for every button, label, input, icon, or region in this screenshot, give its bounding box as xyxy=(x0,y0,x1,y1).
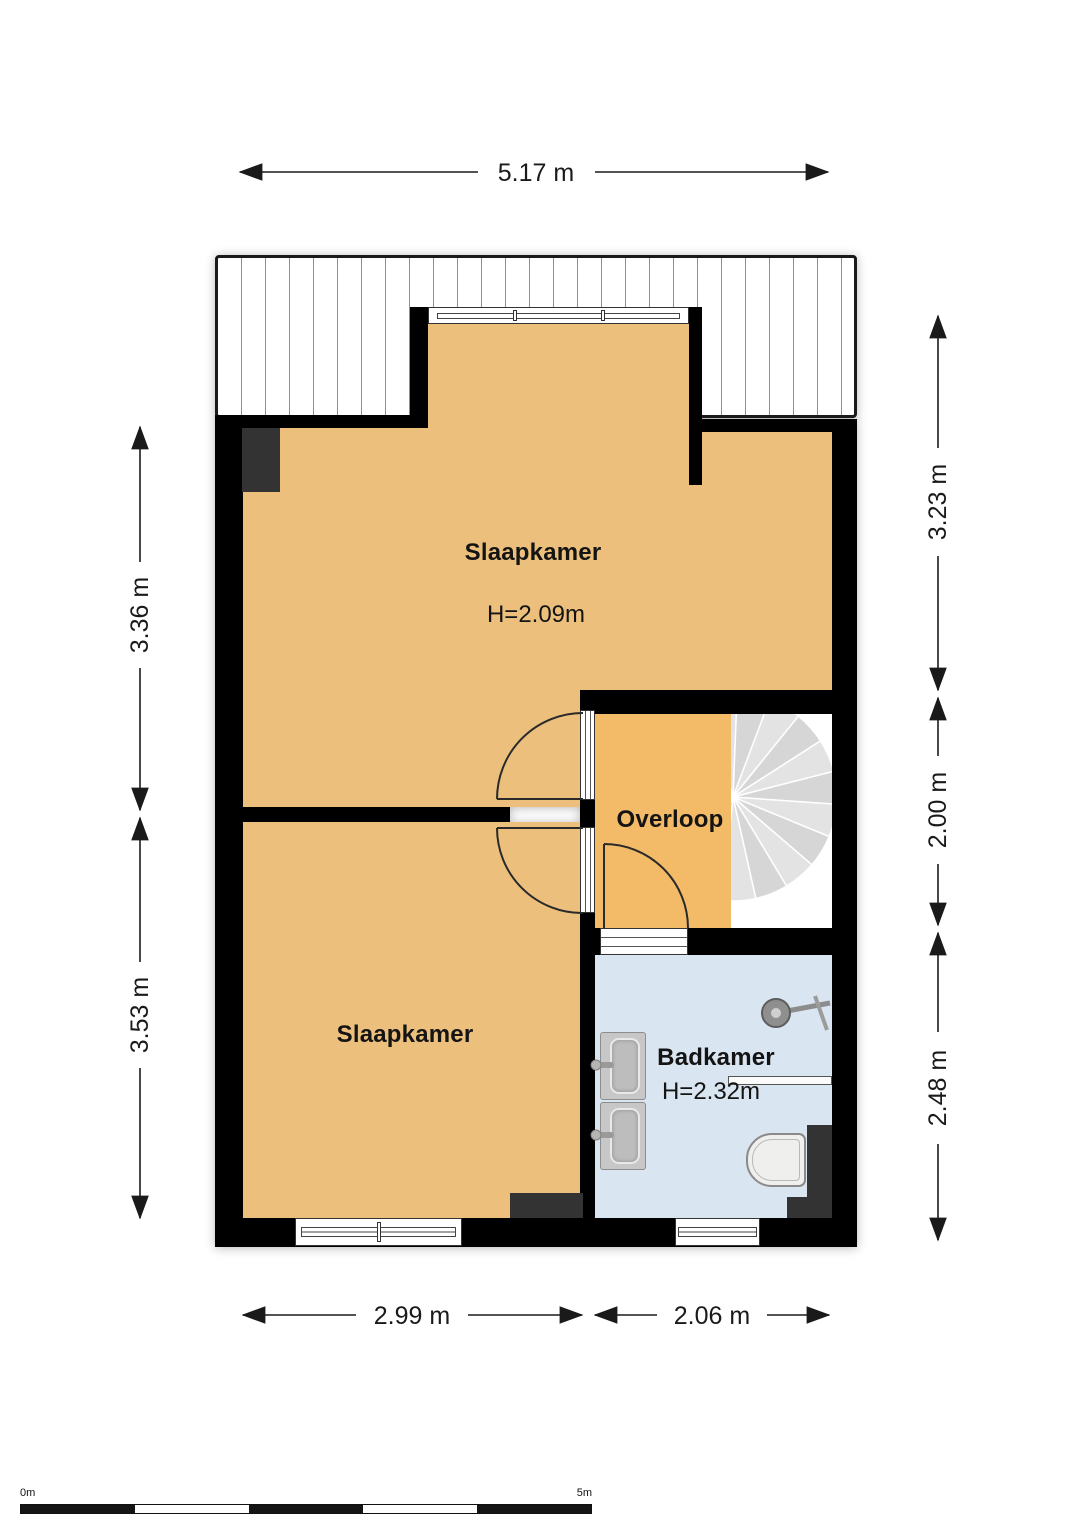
dim-right-upper: 3.23 m xyxy=(924,464,952,540)
scale-segment xyxy=(249,1505,363,1513)
scale-bar-labels: 0m 5m xyxy=(20,1487,592,1499)
dim-right-lower: 2.48 m xyxy=(924,1050,952,1126)
dim-bottom-left: 2.99 m xyxy=(374,1302,450,1330)
dim-top-width: 5.17 m xyxy=(498,159,574,187)
scale-end-label: 5m xyxy=(577,1487,592,1499)
dim-left-lower: 3.53 m xyxy=(126,977,154,1053)
scale-bar xyxy=(20,1504,592,1514)
dim-left-upper: 3.36 m xyxy=(126,577,154,653)
dim-bottom-right: 2.06 m xyxy=(674,1302,750,1330)
scale-segment xyxy=(135,1505,249,1513)
scale-segment xyxy=(477,1505,591,1513)
scale-segment xyxy=(21,1505,135,1513)
dim-right-middle: 2.00 m xyxy=(924,772,952,848)
floorplan-page: Slaapkamer H=2.09m Overloop Slaapkamer B… xyxy=(0,0,1080,1528)
scale-segment xyxy=(363,1505,477,1513)
dimension-layer: 5.17 m 3.36 m 3.53 m 3.23 m 2.00 m 2.48 … xyxy=(0,0,1080,1528)
scale-start-label: 0m xyxy=(20,1487,35,1499)
